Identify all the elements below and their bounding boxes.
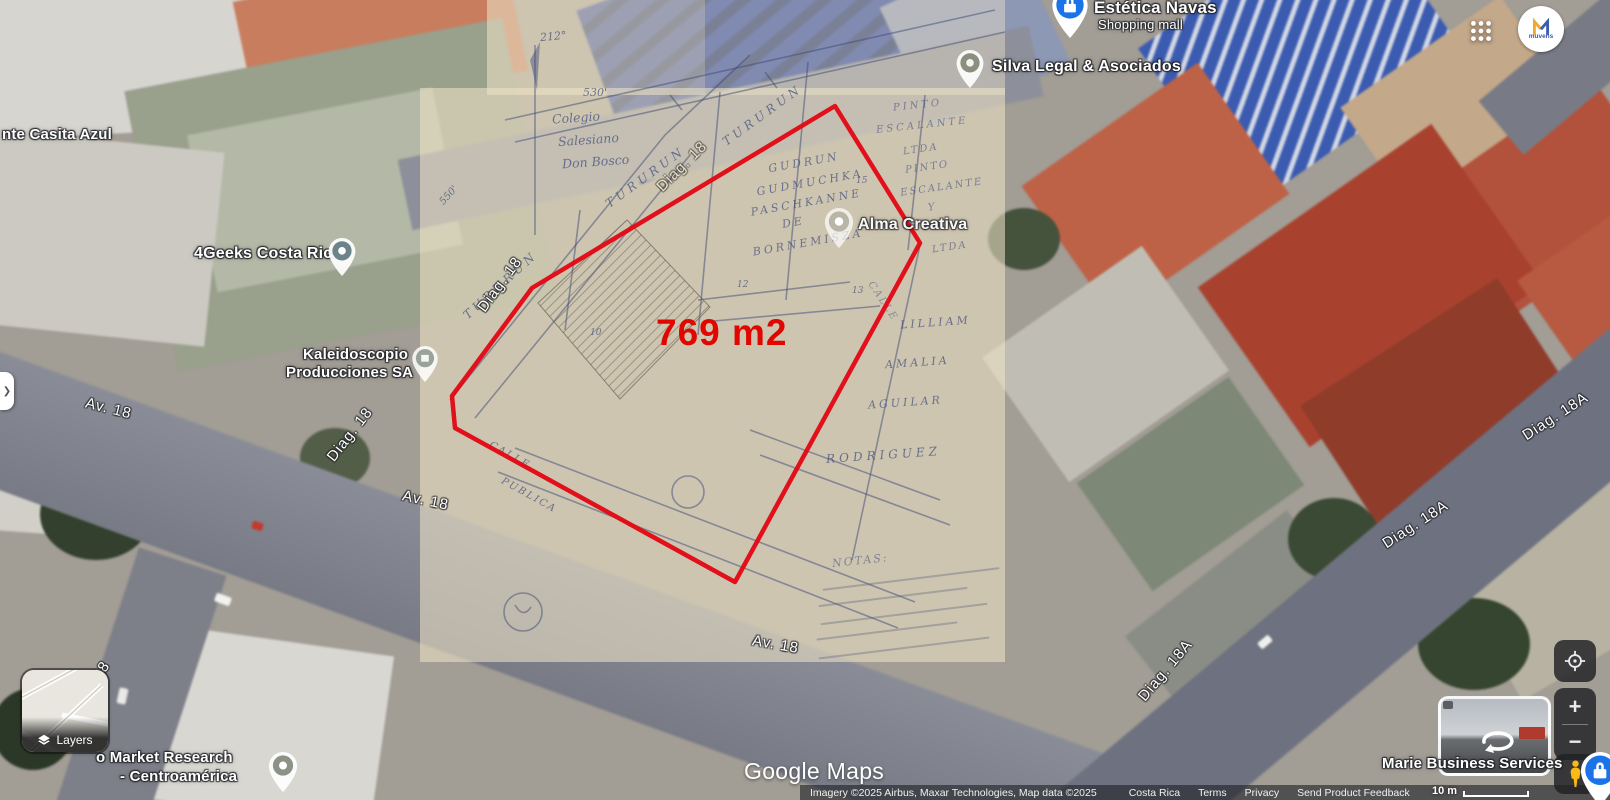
building-roof <box>0 128 225 346</box>
region-link[interactable]: Costa Rica <box>1129 787 1180 799</box>
market-research-pin[interactable] <box>268 752 298 797</box>
terms-link[interactable]: Terms <box>1198 787 1227 799</box>
side-panel-toggle[interactable]: ❯ <box>0 372 14 410</box>
market-research-label-2: - Centroamérica <box>120 768 237 785</box>
kaleidoscopio-label-2: Producciones SA <box>286 364 413 381</box>
marie-business-pin[interactable] <box>1580 752 1610 800</box>
scale-value: 10 m <box>1432 785 1457 797</box>
google-maps-wordmark[interactable]: Google Maps <box>744 758 884 785</box>
my-location-icon <box>1564 650 1586 672</box>
casita-azul-label[interactable]: nte Casita Azul <box>2 126 112 143</box>
fourgeeks-label[interactable]: 4Geeks Costa Rica <box>194 245 341 263</box>
estetica-navas-category: Shopping mall <box>1098 17 1183 32</box>
layers-icon <box>37 733 51 747</box>
silva-legal-pin[interactable] <box>956 50 984 93</box>
plan-bearing: 212° <box>539 29 567 44</box>
map-canvas[interactable]: 769 m2 212° 530' 550' Colegio Salesiano … <box>0 0 1610 800</box>
estetica-navas-pin[interactable] <box>1052 0 1088 43</box>
plan-neighbor-e4: Y <box>927 201 937 213</box>
zoom-control: + − <box>1554 688 1596 760</box>
zoom-in-button[interactable]: + <box>1554 690 1596 724</box>
chevron-right-icon: ❯ <box>3 386 11 397</box>
imagery-credit: Imagery ©2025 Airbus, Maxar Technologies… <box>810 787 1097 799</box>
kaleidoscopio-pin[interactable] <box>412 346 438 387</box>
market-research-label-1[interactable]: o Market Research <box>96 749 233 766</box>
alma-creativa-pin[interactable] <box>824 208 854 253</box>
silva-legal-label[interactable]: Silva Legal & Asociados <box>992 58 1181 76</box>
plan-dim-top: 530' <box>583 86 607 99</box>
plan-num-12: 12 <box>737 280 748 290</box>
rotate-view-icon <box>1474 725 1520 753</box>
plan-num-15: 15 <box>856 176 867 186</box>
map-scale: 10 m <box>1432 785 1529 797</box>
plan-num-13: 13 <box>852 286 863 296</box>
account-avatar[interactable]: muvens <box>1518 6 1564 52</box>
account-name: muvens <box>1529 33 1554 40</box>
parcel-area-label: 769 m2 <box>656 312 788 354</box>
fourgeeks-pin[interactable] <box>328 238 356 281</box>
privacy-link[interactable]: Privacy <box>1245 787 1279 799</box>
thumbnail-corner-tag <box>1443 701 1453 709</box>
feedback-link[interactable]: Send Product Feedback <box>1297 787 1410 799</box>
estetica-navas-label[interactable]: Estética Navas <box>1094 0 1217 18</box>
alma-creativa-label[interactable]: Alma Creativa <box>858 216 967 234</box>
layers-button[interactable]: Layers <box>22 670 108 752</box>
my-location-button[interactable] <box>1554 640 1596 682</box>
apps-grid-icon[interactable] <box>1468 18 1494 49</box>
layers-label: Layers <box>56 733 92 747</box>
plan-num-10: 10 <box>590 328 601 338</box>
kaleidoscopio-label-1[interactable]: Kaleidoscopio <box>303 346 408 363</box>
scale-bar <box>1463 791 1529 797</box>
billboard <box>1519 727 1545 739</box>
marie-business-label[interactable]: Marie Business Services <box>1382 755 1563 772</box>
